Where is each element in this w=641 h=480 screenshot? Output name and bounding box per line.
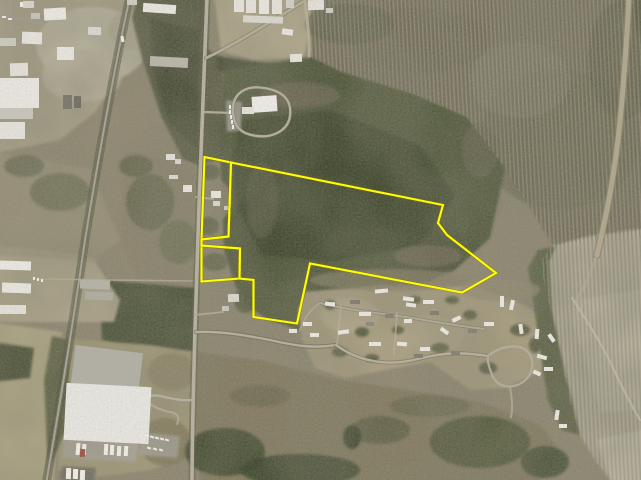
aerial-imagery bbox=[0, 0, 641, 480]
photo-grain-overlay bbox=[0, 0, 641, 480]
grain-layer bbox=[0, 0, 641, 480]
aerial-map-view bbox=[0, 0, 641, 480]
